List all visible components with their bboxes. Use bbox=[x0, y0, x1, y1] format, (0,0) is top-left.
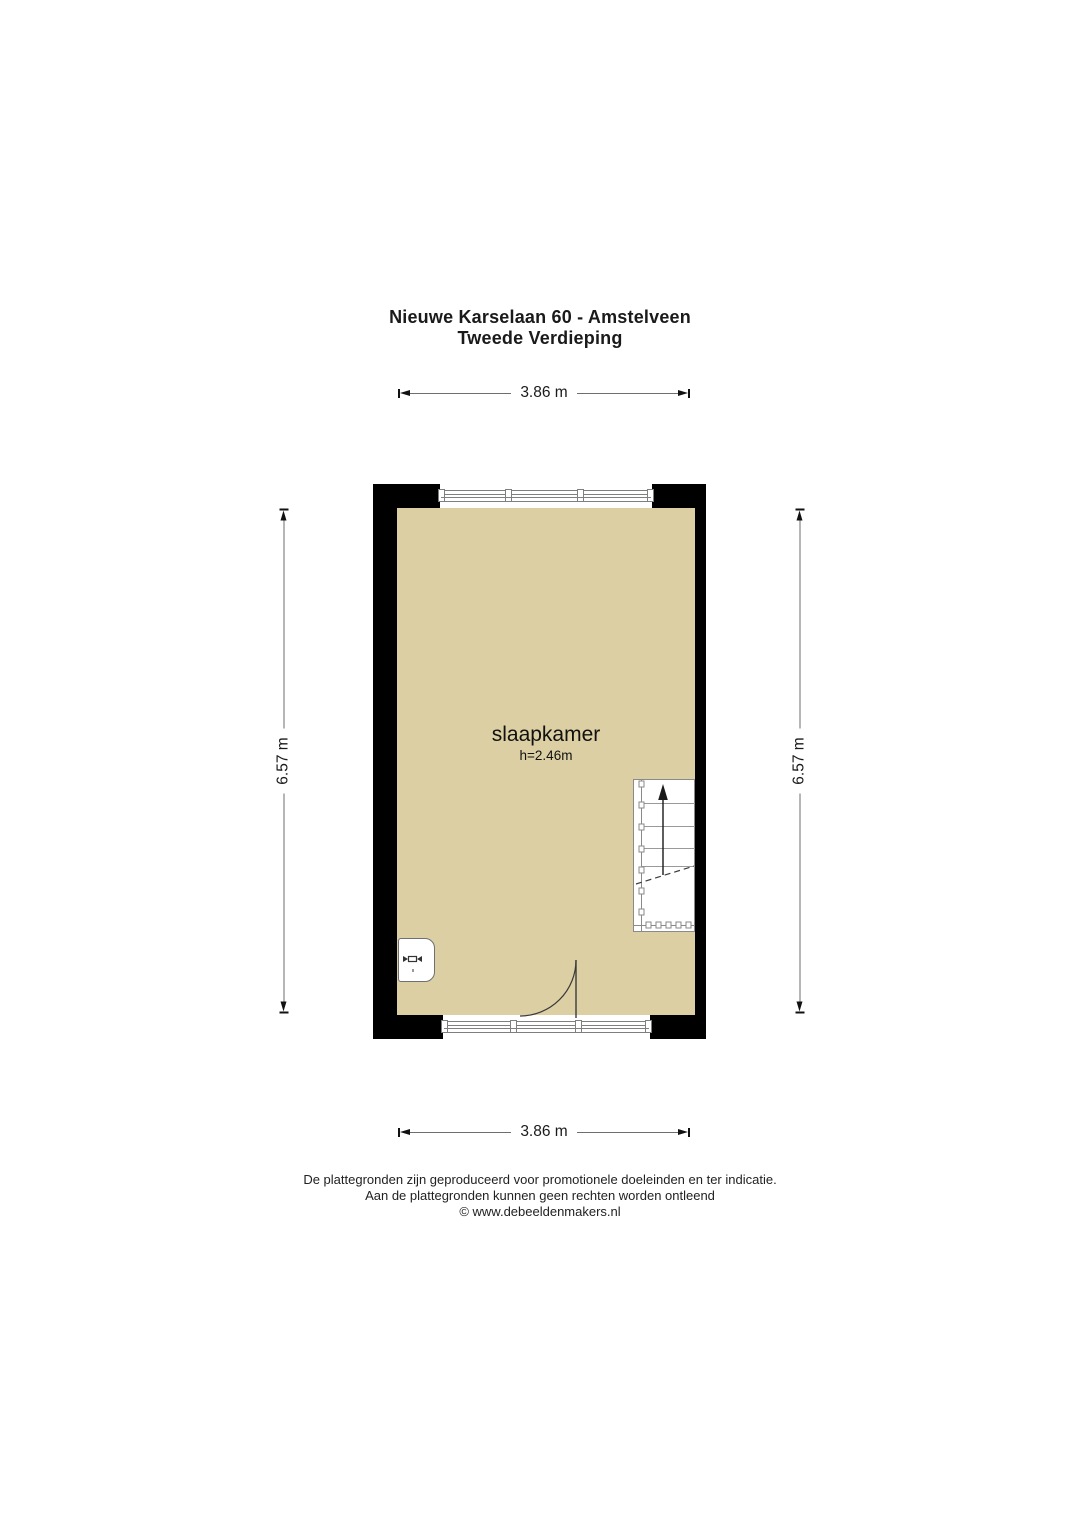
dimension-line bbox=[577, 393, 678, 394]
room-ceiling-height: h=2.46m bbox=[446, 747, 646, 764]
dimension-end-tick bbox=[795, 508, 804, 510]
copyright-line: © www.debeeldenmakers.nl bbox=[0, 1204, 1080, 1220]
window-top bbox=[440, 490, 652, 502]
wall-top-left bbox=[373, 484, 440, 508]
window-mullion bbox=[438, 489, 445, 502]
dimension-right-label: 6.57 m bbox=[790, 728, 808, 793]
floorplan-page: Nieuwe Karselaan 60 - Amstelveen Tweede … bbox=[0, 0, 1080, 1527]
plan-title: Nieuwe Karselaan 60 - Amstelveen Tweede … bbox=[0, 307, 1080, 349]
dimension-line bbox=[283, 793, 284, 1001]
dimension-arrow-up-icon bbox=[280, 510, 286, 520]
dimension-end-tick bbox=[688, 1128, 690, 1137]
disclaimer-line1: De plattegronden zijn geproduceerd voor … bbox=[0, 1172, 1080, 1188]
dimension-top: 3.86 m bbox=[398, 385, 690, 401]
wall-bottom-right bbox=[650, 1015, 706, 1039]
disclaimer-line2: Aan de plattegronden kunnen geen rechten… bbox=[0, 1188, 1080, 1204]
staircase bbox=[633, 779, 695, 932]
door-swing bbox=[518, 958, 582, 1020]
footer-disclaimer: De plattegronden zijn geproduceerd voor … bbox=[0, 1172, 1080, 1220]
window-mullion bbox=[505, 489, 512, 502]
dimension-arrow-right-icon bbox=[678, 1129, 688, 1135]
dimension-arrow-down-icon bbox=[280, 1001, 286, 1011]
dimension-line bbox=[283, 520, 284, 728]
window-mullion bbox=[647, 489, 654, 502]
dimension-bottom-label: 3.86 m bbox=[511, 1123, 576, 1141]
window-mullion bbox=[441, 1020, 448, 1033]
wall-bottom-left bbox=[373, 1015, 443, 1039]
dimension-line bbox=[410, 1132, 511, 1133]
dimension-arrow-right-icon bbox=[678, 390, 688, 396]
window-mullion bbox=[645, 1020, 652, 1033]
dimension-arrow-left-icon bbox=[400, 1129, 410, 1135]
dimension-left: 6.57 m bbox=[275, 508, 291, 1013]
window-mullion bbox=[577, 489, 584, 502]
wall-left bbox=[373, 484, 397, 1039]
floorplan: slaapkamer h=2.46m bbox=[373, 484, 706, 1039]
dimension-top-label: 3.86 m bbox=[511, 384, 576, 402]
plan-title-floor: Tweede Verdieping bbox=[0, 328, 1080, 349]
sink-valve-icon bbox=[399, 939, 433, 980]
dimension-arrow-up-icon bbox=[796, 510, 802, 520]
dimension-end-tick bbox=[279, 508, 288, 510]
window-mullion bbox=[510, 1020, 517, 1033]
dimension-arrow-down-icon bbox=[796, 1001, 802, 1011]
dimension-bottom: 3.86 m bbox=[398, 1124, 690, 1140]
room-label: slaapkamer h=2.46m bbox=[446, 723, 646, 764]
window-mullion bbox=[575, 1020, 582, 1033]
dimension-line bbox=[799, 520, 800, 728]
dimension-arrow-left-icon bbox=[400, 390, 410, 396]
dimension-end-tick bbox=[688, 389, 690, 398]
dimension-line bbox=[799, 793, 800, 1001]
dimension-line bbox=[577, 1132, 678, 1133]
dimension-line bbox=[410, 393, 511, 394]
window-bottom bbox=[443, 1021, 650, 1033]
wall-top-right bbox=[652, 484, 706, 508]
dimension-left-label: 6.57 m bbox=[274, 728, 292, 793]
dimension-right: 6.57 m bbox=[791, 508, 807, 1013]
sink-unit bbox=[398, 938, 435, 982]
wall-right bbox=[695, 484, 706, 1039]
room-name: slaapkamer bbox=[446, 723, 646, 747]
plan-title-address: Nieuwe Karselaan 60 - Amstelveen bbox=[0, 307, 1080, 328]
